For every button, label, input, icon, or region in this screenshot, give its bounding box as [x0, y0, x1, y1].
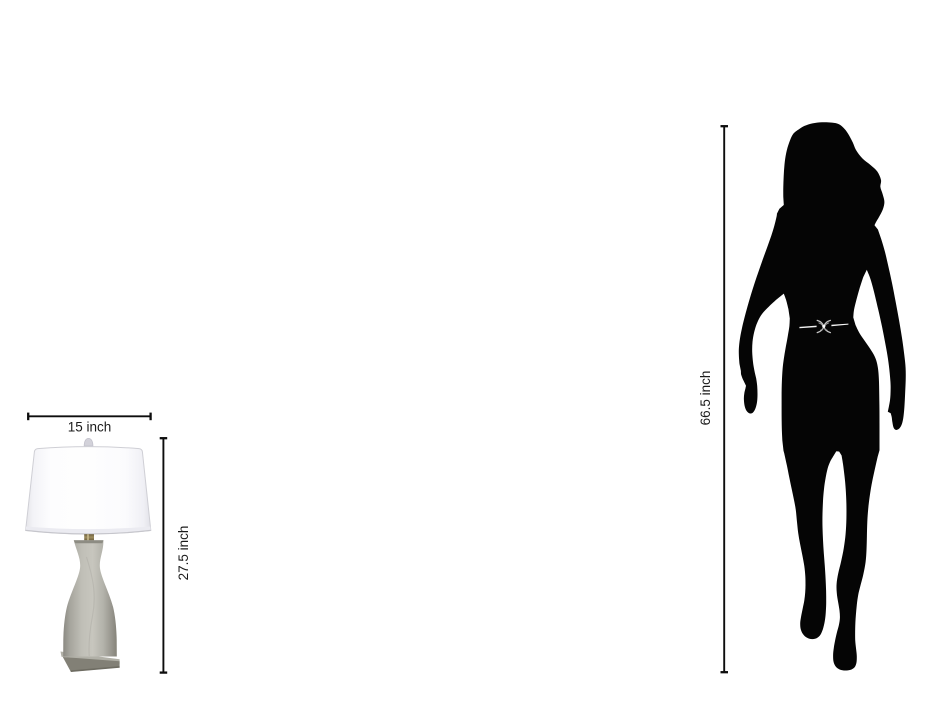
svg-text:15 inch: 15 inch	[68, 420, 112, 435]
svg-text:27.5 inch: 27.5 inch	[176, 526, 191, 581]
svg-text:66.5 inch: 66.5 inch	[698, 371, 713, 426]
